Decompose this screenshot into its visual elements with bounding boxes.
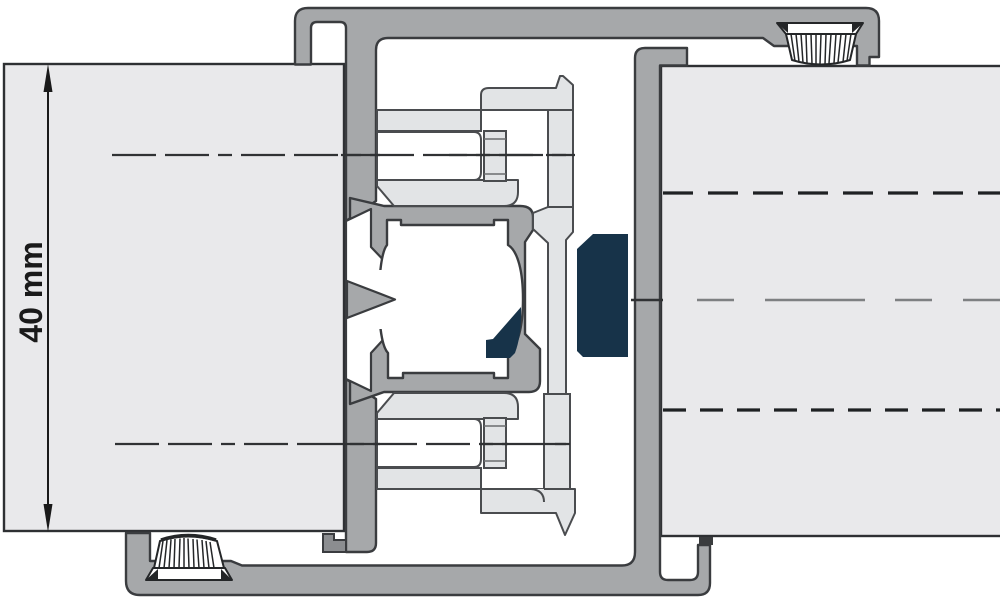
svg-text:40 mm: 40 mm [13, 241, 49, 342]
